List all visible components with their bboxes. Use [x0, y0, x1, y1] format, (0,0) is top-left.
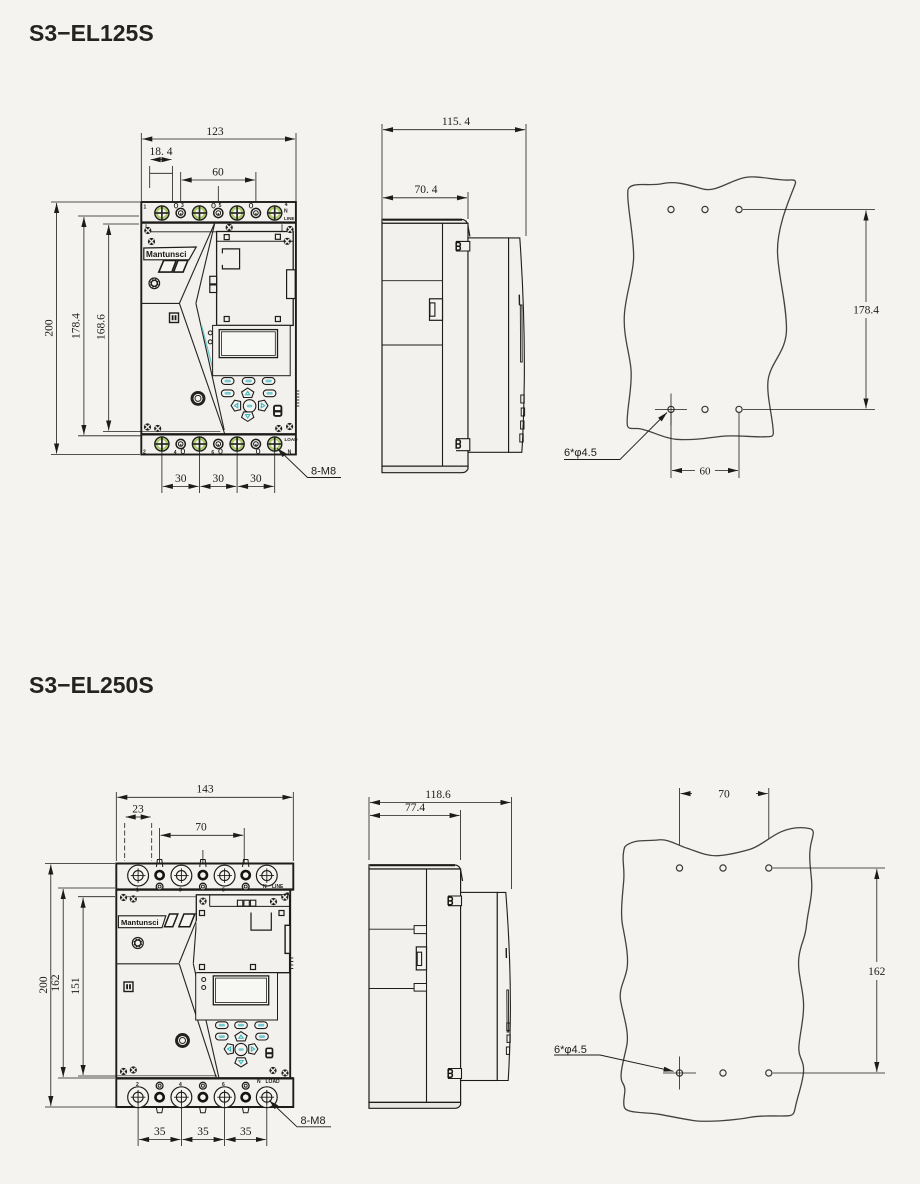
svg-text:8-M8: 8-M8 [311, 466, 336, 478]
svg-text:70: 70 [195, 822, 207, 834]
svg-text:162: 162 [868, 966, 886, 978]
svg-text:151: 151 [70, 977, 82, 995]
svg-text:LINE: LINE [272, 884, 284, 890]
svg-text:6*φ4.5: 6*φ4.5 [554, 1044, 587, 1056]
svg-text:2: 2 [143, 450, 146, 456]
svg-text:162: 162 [50, 974, 62, 992]
svg-text:LINE: LINE [284, 216, 294, 221]
svg-text:Mantunsci: Mantunsci [121, 918, 159, 927]
svg-text:23: 23 [132, 804, 144, 816]
svg-text:N: N [263, 884, 267, 890]
svg-text:18. 4: 18. 4 [150, 146, 173, 158]
svg-text:3: 3 [179, 888, 182, 894]
svg-text:6: 6 [211, 450, 214, 456]
svg-text:6: 6 [222, 1082, 225, 1088]
svg-text:70. 4: 70. 4 [415, 184, 438, 196]
svg-text:1: 1 [136, 888, 139, 894]
svg-text:200: 200 [38, 976, 50, 994]
svg-text:60: 60 [700, 466, 712, 478]
svg-text:143: 143 [196, 784, 214, 796]
svg-text:168.6: 168.6 [95, 314, 107, 340]
svg-text:70: 70 [718, 788, 730, 800]
svg-text:S3−EL125S: S3−EL125S [29, 20, 154, 46]
svg-text:5: 5 [219, 203, 222, 209]
svg-text:77.4: 77.4 [405, 802, 425, 814]
svg-text:123: 123 [206, 126, 224, 138]
svg-text:200: 200 [44, 319, 56, 337]
svg-text:4: 4 [174, 450, 177, 456]
svg-text:8-M8: 8-M8 [301, 1115, 326, 1127]
svg-text:LOAD: LOAD [266, 1079, 281, 1085]
svg-text:6*φ4.5: 6*φ4.5 [564, 447, 597, 459]
svg-text:35: 35 [154, 1126, 166, 1138]
svg-text:35: 35 [197, 1126, 209, 1138]
svg-text:S3−EL250S: S3−EL250S [29, 672, 154, 698]
svg-text:115. 4: 115. 4 [442, 116, 471, 128]
svg-text:N: N [288, 450, 292, 456]
svg-text:N: N [257, 1079, 261, 1085]
svg-text:30: 30 [175, 473, 187, 485]
svg-text:1: 1 [144, 205, 147, 211]
svg-text:118.6: 118.6 [425, 789, 451, 801]
svg-text:4: 4 [179, 1082, 182, 1088]
svg-text:178.4: 178.4 [853, 305, 879, 317]
svg-text:30: 30 [213, 473, 225, 485]
svg-text:5: 5 [222, 888, 225, 894]
svg-text:3: 3 [181, 203, 184, 209]
svg-text:N: N [284, 209, 288, 215]
svg-text:178.4: 178.4 [71, 313, 83, 339]
svg-text:4: 4 [285, 202, 288, 208]
svg-text:60: 60 [212, 167, 224, 179]
svg-text:Mantunsci: Mantunsci [146, 250, 187, 259]
svg-text:LOAD: LOAD [285, 437, 299, 442]
svg-text:35: 35 [240, 1126, 252, 1138]
svg-text:30: 30 [250, 473, 262, 485]
svg-text:2: 2 [136, 1082, 139, 1088]
